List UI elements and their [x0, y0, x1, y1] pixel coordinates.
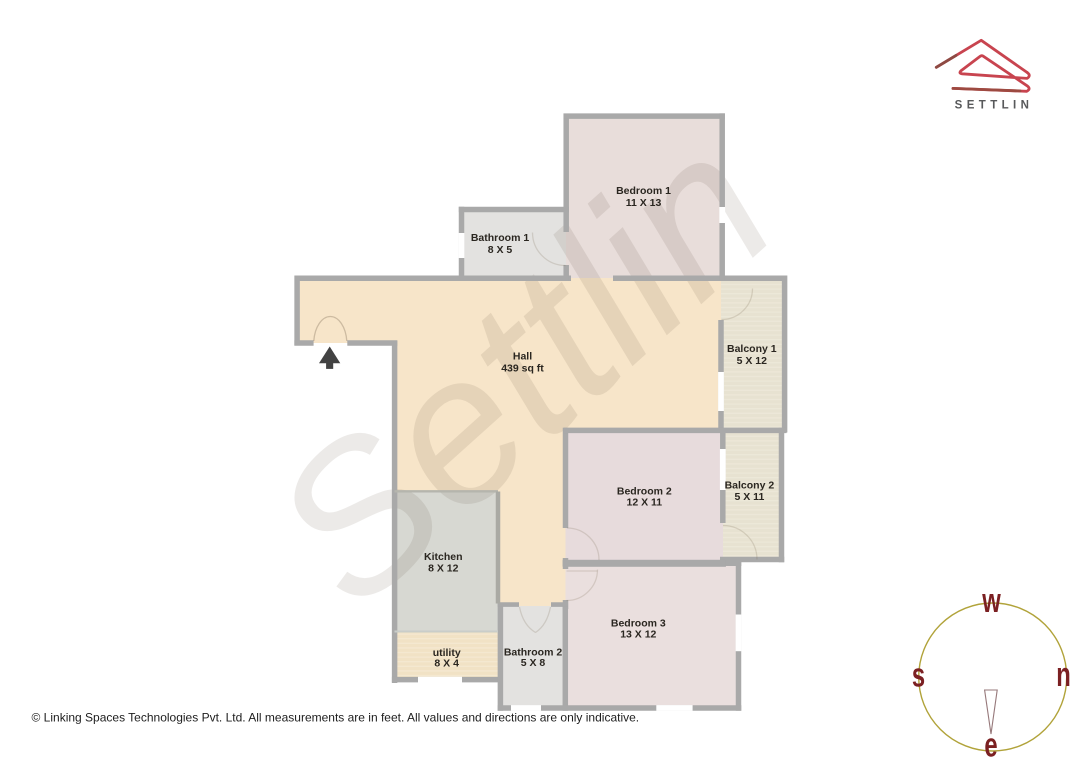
svg-text:Hall: Hall [513, 351, 532, 363]
svg-text:Bathroom 1: Bathroom 1 [471, 232, 530, 244]
svg-text:5 X 11: 5 X 11 [735, 491, 765, 503]
svg-text:5 X 12: 5 X 12 [737, 355, 768, 367]
svg-text:n: n [1056, 656, 1071, 694]
svg-text:5 X 8: 5 X 8 [521, 657, 546, 669]
svg-text:439 sq ft: 439 sq ft [501, 362, 544, 374]
svg-text:e: e [984, 726, 997, 764]
svg-text:s: s [912, 656, 925, 694]
svg-text:8 X 4: 8 X 4 [434, 657, 459, 669]
svg-text:Balcony 2: Balcony 2 [725, 479, 775, 491]
svg-text:12 X 11: 12 X 11 [626, 497, 662, 509]
svg-text:13 X 12: 13 X 12 [620, 629, 656, 641]
svg-text:8 X 5: 8 X 5 [488, 244, 513, 256]
svg-text:© Linking Spaces Technologies: © Linking Spaces Technologies Pvt. Ltd. … [32, 711, 640, 725]
svg-text:11 X 13: 11 X 13 [626, 197, 662, 209]
svg-text:SETTLIN: SETTLIN [955, 100, 1034, 112]
svg-text:8 X 12: 8 X 12 [428, 563, 459, 575]
svg-text:Bedroom 2: Bedroom 2 [617, 485, 672, 497]
svg-text:Bedroom 1: Bedroom 1 [616, 185, 671, 197]
svg-text:Kitchen: Kitchen [424, 551, 463, 563]
svg-text:w: w [981, 582, 1000, 620]
svg-text:Bedroom 3: Bedroom 3 [611, 618, 666, 630]
svg-text:Balcony 1: Balcony 1 [727, 343, 777, 355]
